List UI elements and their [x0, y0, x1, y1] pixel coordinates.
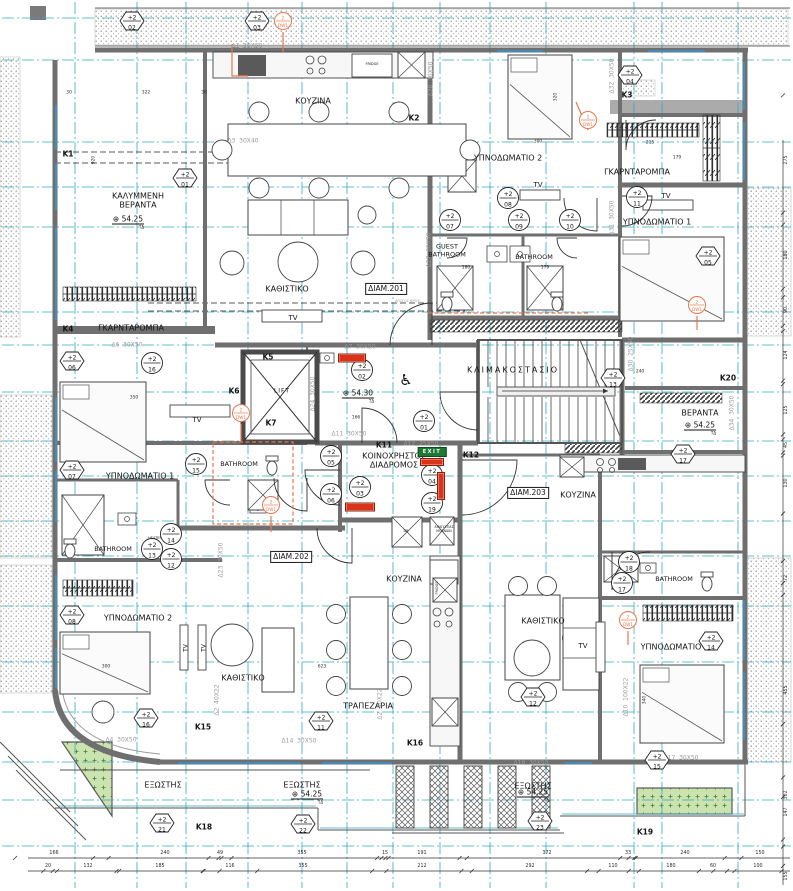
dimension-label: 180 — [666, 864, 675, 870]
dw-prefix: 2 — [240, 408, 243, 413]
column-label: K1 — [62, 151, 73, 160]
dimension-label: 180 — [784, 250, 790, 259]
furniture-label: TV — [661, 192, 670, 200]
marker-number: 11 — [317, 724, 325, 731]
marker-prefix: +2 — [707, 634, 716, 641]
door-window-marker: +203 — [349, 476, 372, 503]
wheelchair-icon: ♿ — [399, 371, 412, 389]
downpipe-marker: 2DW1 — [618, 610, 638, 634]
marker-prefix: +2 — [68, 354, 77, 361]
marker-number: 07 — [446, 224, 454, 231]
marker-prefix: +2 — [529, 690, 538, 697]
marker-number: 03 — [253, 24, 261, 31]
dimension-label: 292 — [525, 864, 534, 870]
level-sub: ΤΔ — [369, 399, 374, 404]
downpipe-marker: 2DW1 — [273, 11, 293, 35]
room-label: BATHROOM — [655, 576, 693, 584]
marker-number: 02 — [128, 24, 136, 31]
level-value: ⊕ 54.25 — [291, 790, 323, 800]
dimension-label: 116 — [225, 864, 234, 870]
marker-prefix: +2 — [446, 213, 455, 220]
interior-dimension: 215 — [646, 140, 655, 145]
marker-prefix: +2 — [428, 496, 437, 503]
dimension-label: 147 — [784, 807, 790, 816]
dw-prefix: 2 — [282, 16, 285, 21]
beam-label: Δ10 100X22 — [622, 678, 629, 717]
dimension-label: 15 — [382, 851, 388, 857]
marker-prefix: +2 — [679, 447, 688, 454]
marker-prefix: +2 — [609, 371, 618, 378]
marker-prefix: +2 — [167, 527, 176, 534]
furniture-label: ΑΠΑΓΩΓΕΑΣ ΜΠΑΝΙΩΝ — [435, 526, 454, 534]
marker-number: 06 — [327, 498, 335, 505]
exit-sign: EXIT — [418, 447, 447, 457]
marker-prefix: +2 — [192, 457, 201, 464]
column-label: K15 — [195, 724, 211, 733]
furniture-label: LIFT — [274, 387, 290, 394]
room-label: ΚΟΥΖΙΝΑ — [560, 490, 596, 499]
room-label: ΥΠΝΟΔΩΜΑΤΙΟ 2 — [474, 153, 542, 162]
dw-prefix: 2 — [627, 615, 630, 620]
beam-label: Δ2 40X22 — [213, 684, 220, 715]
ceiling-marker: +222 — [290, 814, 316, 839]
room-label: ΥΠΝΟΔΩΜΑΤΙΟ 1 — [106, 471, 174, 480]
ceiling-marker: +212 — [520, 687, 546, 712]
fire-safety-tag — [420, 458, 444, 466]
beam-label: Δ16 30X50 — [514, 759, 549, 766]
marker-prefix: +2 — [181, 171, 190, 178]
ceiling-marker: +217 — [670, 444, 696, 469]
dw-label: DW1 — [236, 415, 246, 420]
floorplan-labels: ΚΑΛΥΜΜΕΝΗ ΒΕΡΑΝΤΑΚΟΥΖΙΝΑΚΑΘΙΣΤΙΚΟΥΠΝΟΔΩΜ… — [0, 0, 793, 891]
marker-prefix: +2 — [704, 249, 713, 256]
marker-prefix: +2 — [299, 817, 308, 824]
ceiling-marker: +207 — [59, 460, 85, 485]
interior-dimension: 240 — [636, 369, 645, 374]
level-marker: ⊕ 54.25ΤΔ — [291, 790, 323, 805]
marker-number: 17 — [679, 457, 687, 464]
room-label: ΥΠΝΟΔΩΜΑΤΙΟ 1 — [623, 217, 691, 226]
interior-dimension: 166 — [352, 415, 361, 420]
fire-safety-tag — [338, 354, 366, 363]
marker-prefix: +2 — [653, 753, 662, 760]
ceiling-marker: +223 — [527, 811, 553, 836]
marker-number: 01 — [420, 425, 428, 432]
room-label: ΚΑΘΙΣΤΙΚΟ — [221, 673, 264, 682]
beam-label: Δ7 30X50 — [344, 343, 375, 350]
marker-number: 15 — [653, 763, 661, 770]
dimension-label: 20 — [45, 864, 51, 870]
beam-label: Δ31 30X50 — [608, 201, 615, 236]
marker-prefix: +2 — [504, 191, 513, 198]
furniture-label: TV — [192, 416, 201, 424]
marker-number: 16 — [148, 367, 156, 374]
ceiling-marker: +204 — [617, 65, 643, 90]
ceiling-marker: +214 — [698, 631, 724, 656]
ceiling-marker: +202 — [119, 11, 145, 36]
furniture-label: TV — [182, 644, 189, 652]
apartment-tag: ΔΙΑΜ.203 — [507, 487, 549, 499]
marker-number: 13 — [609, 381, 617, 388]
marker-number: 12 — [167, 563, 175, 570]
marker-prefix: +2 — [128, 14, 137, 21]
column-label: K6 — [228, 388, 239, 397]
ceiling-marker: +221 — [149, 813, 175, 838]
room-label: ΚΛΙΜΑΚΟΣΤΑΣΙΟ — [467, 365, 559, 374]
interior-dimension: 350 — [130, 395, 139, 400]
door-window-marker: +205 — [320, 445, 343, 472]
column-label: K3 — [621, 92, 632, 101]
room-label: ΕΞΩΣΤΗΣ — [283, 780, 320, 789]
marker-prefix: +2 — [327, 487, 336, 494]
door-window-marker: +211 — [626, 186, 649, 213]
beam-label: Δ24 30X50 — [309, 377, 316, 412]
furniture-label: DB — [403, 529, 408, 533]
ceiling-marker: +205 — [695, 246, 721, 271]
marker-prefix: +2 — [625, 555, 634, 562]
marker-number: 22 — [299, 827, 307, 834]
room-label: ΚΟΥΖΙΝΑ — [295, 96, 331, 105]
apartment-tag: ΔΙΑΜ.202 — [270, 551, 312, 563]
dw-prefix: 2 — [270, 500, 273, 505]
interior-dimension: 30 — [66, 90, 72, 95]
dimension-label: 72 — [784, 575, 790, 581]
column-label: K2 — [408, 115, 419, 124]
dw-prefix: 2 — [696, 300, 699, 305]
beam-label: Δ2 40X22 — [376, 688, 383, 719]
marker-number: 15 — [192, 468, 200, 475]
marker-number: 17 — [618, 587, 626, 594]
marker-prefix: +2 — [158, 816, 167, 823]
interior-dimension: 180 — [462, 265, 471, 270]
ceiling-marker: +213 — [600, 368, 626, 393]
dimension-label: 185 — [155, 864, 164, 870]
marker-number: 09 — [515, 224, 523, 231]
furniture-label: TV — [533, 181, 542, 189]
interior-dimension: 179 — [673, 155, 682, 160]
marker-number: 05 — [327, 460, 335, 467]
dimension-label: 355 — [297, 851, 306, 857]
marker-number: 03 — [356, 491, 364, 498]
dimension-label: 90 — [784, 307, 790, 313]
door-window-marker: +218 — [618, 551, 641, 578]
level-marker: ⊕ 54.25ΤΔ — [112, 215, 144, 230]
room-label: ΚΑΘΙΣΤΙΚΟ — [521, 616, 564, 625]
column-label: K16 — [407, 740, 423, 749]
downpipe-marker: 2DW1 — [578, 110, 598, 134]
ceiling-marker: +206 — [59, 351, 85, 376]
ceiling-marker: +215 — [644, 750, 670, 775]
dw-label: DW1 — [623, 622, 633, 627]
marker-number: 04 — [428, 479, 436, 486]
furniture-label: FRIDGE — [435, 581, 439, 594]
marker-number: 19 — [428, 507, 436, 514]
dimension-label: 302 — [784, 790, 790, 799]
beam-label: Δ34 30X50 — [728, 396, 735, 431]
room-label: ΚΟΥΖΙΝΑ — [386, 574, 422, 583]
beam-label: Δ1 30X50 — [231, 42, 262, 49]
dimension-label: 100 — [753, 864, 762, 870]
marker-prefix: +2 — [566, 213, 575, 220]
marker-number: 14 — [167, 538, 175, 545]
room-label: ΚΑΛΥΜΜΕΝΗ ΒΕΡΑΝΤΑ — [112, 192, 164, 211]
marker-number: 04 — [626, 78, 634, 85]
marker-prefix: +2 — [253, 14, 262, 21]
dimension-label: 33 — [625, 851, 631, 857]
dimension-label: 212 — [417, 864, 426, 870]
furniture-label: FRIDGE — [365, 62, 378, 66]
marker-prefix: +2 — [536, 814, 545, 821]
beam-label: Δ23 30X50 — [217, 543, 224, 578]
door-window-marker: +209 — [508, 209, 531, 236]
level-marker: ⊕ 54.25ΤΔ — [517, 788, 549, 803]
marker-prefix: +2 — [626, 68, 635, 75]
fire-safety-tag — [345, 503, 375, 512]
marker-prefix: +2 — [68, 608, 77, 615]
column-label: K4 — [62, 326, 73, 335]
room-label: ΓΚΑΡΝΤΑΡΟΜΠΑ — [604, 167, 670, 176]
marker-number: 14 — [707, 644, 715, 651]
column-label: K20 — [720, 375, 736, 384]
marker-number: 21 — [158, 826, 166, 833]
marker-number: 08 — [68, 618, 76, 625]
room-label: ΥΠΝΟΔΩΜΑΤΙΟ — [641, 642, 702, 651]
downpipe-marker: 2DW1 — [231, 403, 251, 427]
room-label: ΕΞΩΣΤΗΣ — [144, 780, 181, 789]
beam-label: Δ4 30X50 — [105, 736, 136, 743]
beam-label: Δ11 30X50 — [332, 430, 367, 437]
room-label: ΚΑΘΙΣΤΙΚΟ — [265, 284, 308, 293]
interior-dimension: 920 — [91, 156, 96, 165]
dimension-label: 45 — [784, 442, 790, 448]
dimension-label: 49 — [217, 851, 223, 857]
interior-dimension: 38 — [201, 90, 207, 95]
beam-label: Δ30 25X50 — [627, 337, 634, 372]
column-label: K5 — [262, 354, 273, 363]
interior-dimension: 623 — [318, 664, 327, 669]
marker-prefix: +2 — [358, 363, 367, 370]
marker-prefix: +2 — [633, 190, 642, 197]
dimension-label: 240 — [680, 851, 689, 857]
floorplan-page: ΚΑΛΥΜΜΕΝΗ ΒΕΡΑΝΤΑΚΟΥΖΙΝΑΚΑΘΙΣΤΙΚΟΥΠΝΟΔΩΜ… — [0, 0, 793, 891]
marker-number: 12 — [529, 700, 537, 707]
marker-number: 02 — [358, 374, 366, 381]
marker-prefix: +2 — [515, 213, 524, 220]
marker-prefix: +2 — [142, 711, 151, 718]
marker-number: 06 — [68, 364, 76, 371]
beam-label: Δ14 30X50 — [282, 737, 317, 744]
marker-number: 23 — [536, 824, 544, 831]
dimension-label: 150 — [755, 851, 764, 857]
fire-safety-tag — [437, 472, 445, 500]
level-value: ⊕ 54.30 — [342, 389, 374, 399]
level-sub: ΤΔ — [139, 225, 144, 230]
column-label: K11 — [376, 442, 392, 451]
room-label: BATHROOM — [515, 254, 553, 262]
beam-label: Δ3 30X40 — [227, 137, 258, 144]
ceiling-marker: +211 — [308, 711, 334, 736]
downpipe-marker: 2DW1 — [687, 295, 707, 319]
beam-label: Δ27 30X50 — [425, 233, 432, 268]
apartment-tag: ΔΙΑΜ.201 — [365, 283, 407, 295]
door-window-marker: +202 — [351, 359, 374, 386]
downpipe-marker: 2DW1 — [261, 495, 281, 519]
furniture-label: ΑΓΩΓΟΣ ΒΡΟΧ. — [395, 299, 421, 303]
furniture-label: TV — [200, 644, 207, 652]
dimension-label: 166 — [49, 851, 58, 857]
furniture-label: TV — [578, 642, 587, 650]
column-label: K7 — [265, 420, 276, 429]
level-value: ⊕ 54.25 — [517, 788, 549, 798]
beam-label: Δ28 30X50 — [427, 62, 434, 97]
dimension-label: 125 — [784, 405, 790, 414]
furniture-label: TV — [288, 314, 297, 322]
room-label: ΚΟΙΝΟΧΡΗΣΤΟΣ ΔΙΑΔΡΟΜΟΣ — [362, 452, 426, 471]
level-sub: ΤΔ — [318, 800, 323, 805]
door-window-marker: +207 — [439, 209, 462, 236]
marker-prefix: +2 — [317, 714, 326, 721]
room-label: ΤΡΑΠΕΖΑΡΙΑ — [343, 701, 393, 710]
door-window-marker: +216 — [141, 352, 164, 379]
marker-prefix: +2 — [356, 480, 365, 487]
marker-number: 08 — [504, 202, 512, 209]
ceiling-marker: +216 — [133, 708, 159, 733]
marker-number: 16 — [142, 721, 150, 728]
room-label: ΒΕΡΑΝΤΑ — [681, 408, 718, 417]
level-value: ⊕ 54.25 — [112, 215, 144, 225]
level-sub: ΤΔ — [544, 798, 549, 803]
marker-prefix: +2 — [428, 468, 437, 475]
ceiling-marker: +208 — [59, 605, 85, 630]
interior-dimension: 300 — [534, 139, 543, 144]
marker-prefix: +2 — [148, 356, 157, 363]
dimension-label: 240 — [160, 851, 169, 857]
dimension-label: 60 — [710, 864, 716, 870]
column-label: K12 — [463, 452, 479, 461]
dimension-label: 110 — [608, 864, 617, 870]
level-sub: ΤΔ — [711, 431, 716, 436]
dimension-label: 132 — [83, 864, 92, 870]
dimension-label: 124 — [784, 350, 790, 359]
room-label: GUEST BATHROOM — [428, 243, 466, 258]
ceiling-marker: +201 — [172, 168, 198, 193]
marker-prefix: +2 — [167, 552, 176, 559]
interior-dimension: 322 — [142, 90, 151, 95]
room-label: BATHROOM — [94, 546, 132, 554]
marker-number: 01 — [181, 181, 189, 188]
marker-number: 11 — [633, 201, 641, 208]
door-window-marker: +201 — [413, 410, 436, 437]
dimension-label: 155 — [784, 871, 790, 880]
room-label: ΥΠΝΟΔΩΜΑΤΙΟ 2 — [104, 613, 172, 622]
marker-number: 05 — [704, 259, 712, 266]
dimension-label: 275 — [784, 155, 790, 164]
door-window-marker: +214 — [160, 523, 183, 550]
beam-label: Δ6 30X50 — [111, 341, 142, 348]
dw-label: DW1 — [278, 23, 288, 28]
dw-label: DW1 — [692, 307, 702, 312]
door-window-marker: +210 — [559, 209, 582, 236]
level-marker: ⊕ 54.25ΤΔ — [684, 421, 716, 436]
ceiling-marker: +203 — [244, 11, 270, 36]
dimension-label: 191 — [417, 851, 426, 857]
beam-label: Δ32 30X50 — [608, 59, 615, 94]
interior-dimension: 179 — [541, 265, 550, 270]
marker-number: 13 — [148, 553, 156, 560]
marker-number: 07 — [68, 473, 76, 480]
interior-dimension: 340 — [642, 696, 647, 705]
interior-dimension: 320 — [553, 93, 558, 102]
dw-label: DW1 — [266, 507, 276, 512]
marker-prefix: +2 — [148, 542, 157, 549]
room-label: BATHROOM — [220, 461, 258, 469]
dimension-label: 455 — [784, 685, 790, 694]
door-window-marker: +215 — [185, 453, 208, 480]
marker-prefix: +2 — [68, 463, 77, 470]
room-label: ΓΚΑΡΝΤΑΡΟΜΠΑ — [98, 323, 164, 332]
dimension-label: 130 — [784, 478, 790, 487]
marker-number: 10 — [566, 224, 574, 231]
dw-label: DW1 — [583, 122, 593, 127]
column-label: K19 — [637, 829, 653, 838]
dimension-label: 372 — [542, 851, 551, 857]
marker-prefix: +2 — [420, 414, 429, 421]
marker-number: 18 — [625, 566, 633, 573]
column-label: K18 — [196, 824, 212, 833]
door-window-marker: +206 — [320, 483, 343, 510]
level-value: ⊕ 54.25 — [684, 421, 716, 431]
marker-prefix: +2 — [327, 449, 336, 456]
level-marker: ⊕ 54.30ΤΔ — [342, 389, 374, 404]
interior-dimension: 300 — [102, 664, 111, 669]
dimension-label: 355 — [298, 864, 307, 870]
dw-prefix: 2 — [587, 115, 590, 120]
